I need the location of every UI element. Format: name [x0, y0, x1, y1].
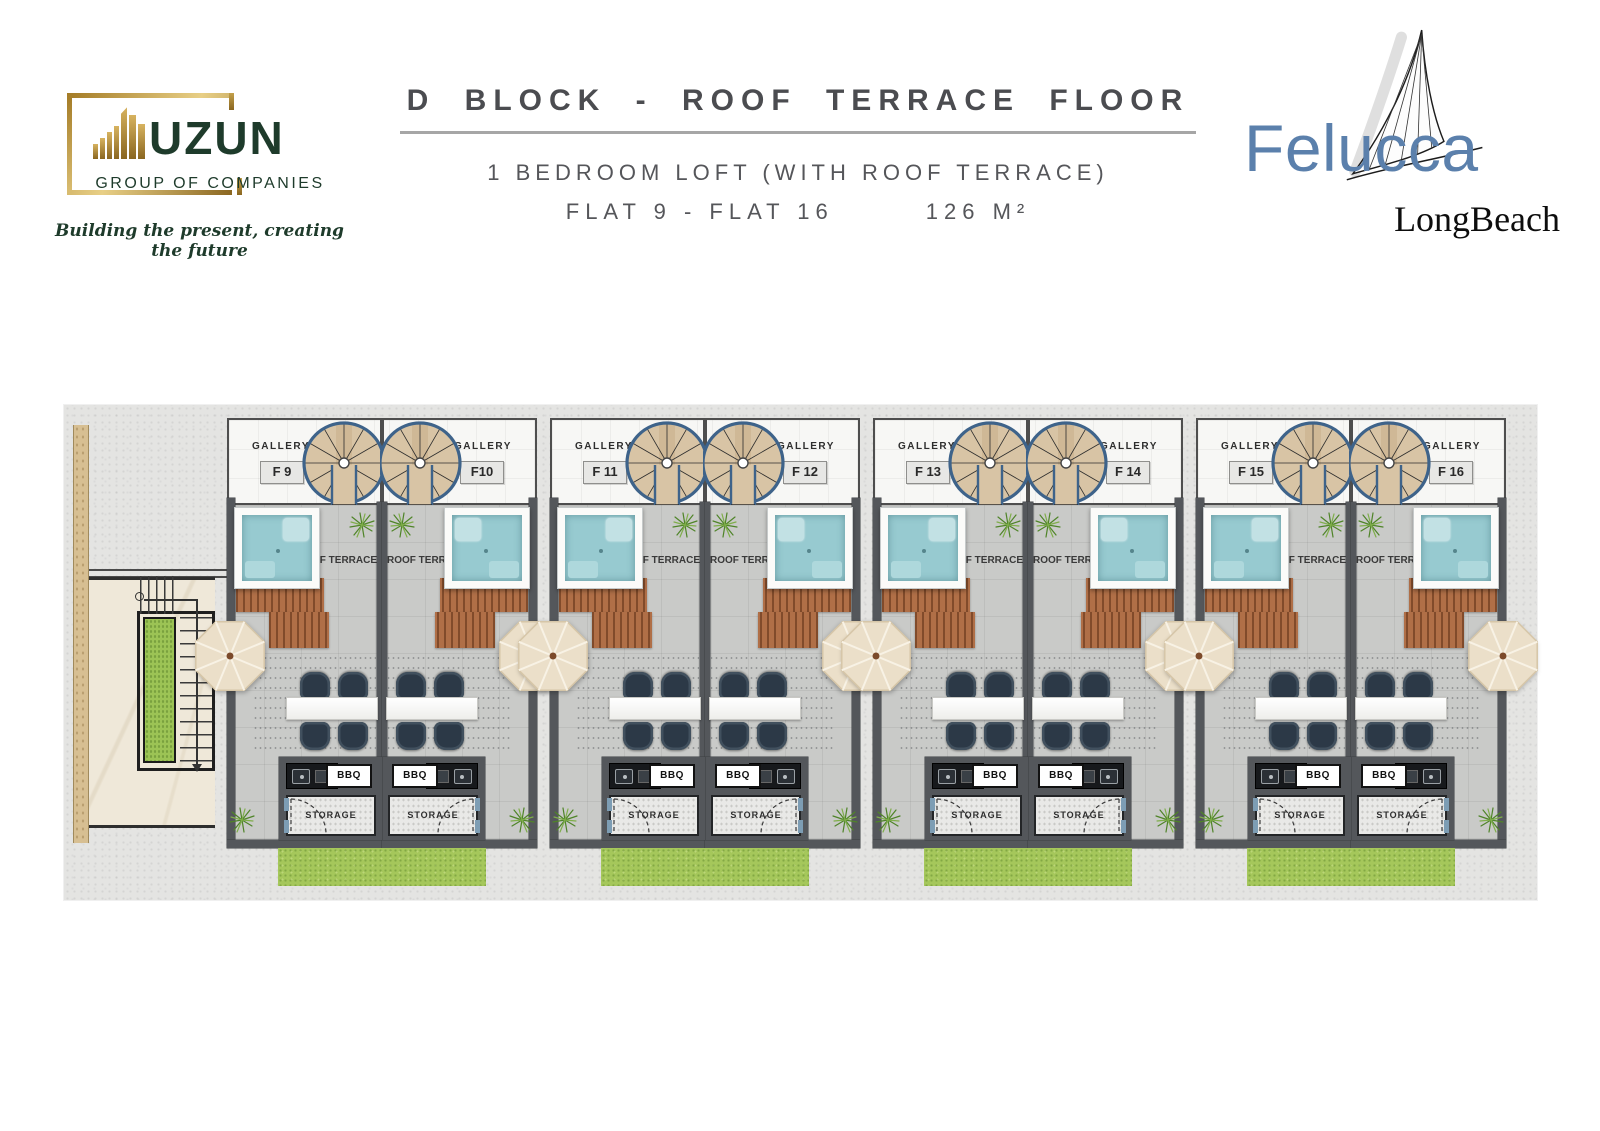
chair: [338, 722, 368, 750]
uzun-frame-stub: [229, 93, 234, 110]
chair: [946, 672, 976, 700]
terrace-wall: [873, 840, 1028, 848]
bbq-storage-block: BBQ STORAGE: [925, 757, 1028, 840]
pergola-deck: [1081, 612, 1141, 648]
pergola-deck: [1404, 612, 1464, 648]
unit-row: GALLERY F 9: [227, 418, 1506, 890]
sink-icon: [1423, 769, 1441, 784]
jacuzzi: [444, 507, 530, 589]
title-block: D BLOCK - ROOF TERRACE FLOOR 1 BEDROOM L…: [400, 84, 1196, 225]
unit-f9: GALLERY F 9: [227, 418, 382, 848]
storage-room: STORAGE: [1357, 795, 1447, 836]
storage-label: STORAGE: [611, 810, 697, 820]
sink-icon: [1100, 769, 1118, 784]
bbq-storage-block: BBQ STORAGE: [1351, 757, 1454, 840]
bbq-storage-block: BBQ STORAGE: [1248, 757, 1351, 840]
felucca-logo: Felucca LongBeach: [1240, 22, 1570, 250]
uzun-logo-name: UZUN: [149, 111, 285, 165]
chair: [1403, 722, 1433, 750]
unit-id-badge: F 11: [583, 461, 627, 484]
jacuzzi: [1413, 507, 1499, 589]
bbq-storage-block: BBQ STORAGE: [602, 757, 705, 840]
unit-area: 126 M²: [926, 199, 1030, 225]
chair: [661, 722, 691, 750]
chair: [396, 722, 426, 750]
chair: [300, 672, 330, 700]
sink-icon: [615, 769, 633, 784]
gallery-strip: GALLERY F 14: [1028, 418, 1183, 505]
chair: [1307, 722, 1337, 750]
grass-strip: [278, 848, 486, 886]
storage-label: STORAGE: [1359, 810, 1445, 820]
plant-icon: [874, 806, 902, 834]
gallery-strip: GALLERY F10: [382, 418, 537, 505]
terrace-wall: [1351, 840, 1506, 848]
dining-table: [286, 697, 378, 720]
dining-table: [709, 697, 801, 720]
jacuzzi: [1090, 507, 1176, 589]
chair: [1080, 722, 1110, 750]
umbrella-icon: [514, 617, 592, 695]
flats-area-line: FLAT 9 - FLAT 16 126 M²: [400, 199, 1196, 225]
unit-f15: GALLERY F 15: [1196, 418, 1351, 848]
unit-id-badge: F 15: [1229, 461, 1273, 484]
spiral-staircase-icon: [1349, 419, 1433, 507]
wall-line: [89, 569, 227, 571]
storage-label: STORAGE: [288, 810, 374, 820]
chair: [434, 672, 464, 700]
jacuzzi-water: [775, 515, 845, 581]
plant-icon: [711, 511, 739, 539]
plant-icon: [1357, 511, 1385, 539]
bbq-storage-block: BBQ STORAGE: [705, 757, 808, 840]
chair: [1403, 672, 1433, 700]
title-underline: [400, 131, 1196, 134]
unit-id-badge: F 12: [783, 461, 827, 484]
bbq-storage-block: BBQ STORAGE: [1028, 757, 1131, 840]
storage-room: STORAGE: [1034, 795, 1124, 836]
plant-icon: [1317, 511, 1345, 539]
plant-icon: [1034, 511, 1062, 539]
jacuzzi: [767, 507, 853, 589]
terrace-wall: [382, 840, 537, 848]
jacuzzi: [234, 507, 320, 589]
chair: [661, 672, 691, 700]
chair: [1269, 722, 1299, 750]
plant-icon: [1154, 806, 1182, 834]
plant-icon: [551, 806, 579, 834]
unit-id-badge: F 9: [260, 461, 304, 484]
plant-icon: [508, 806, 536, 834]
chair: [1307, 672, 1337, 700]
stair-start-symbol: [135, 592, 144, 601]
unit-f11: GALLERY F 11: [550, 418, 705, 848]
unit-f13: GALLERY F 13: [873, 418, 1028, 848]
pergola-deck: [915, 612, 975, 648]
chair: [1269, 672, 1299, 700]
storage-room: STORAGE: [286, 795, 376, 836]
terrace-wall: [705, 840, 860, 848]
terrace-wall: [1196, 840, 1351, 848]
pergola-deck: [1238, 612, 1298, 648]
door-jamb: [1121, 798, 1126, 811]
storage-room: STORAGE: [932, 795, 1022, 836]
bbq-label: BBQ: [1038, 764, 1084, 788]
chair: [946, 722, 976, 750]
storage-room: STORAGE: [1255, 795, 1345, 836]
storage-label: STORAGE: [1257, 810, 1343, 820]
bbq-label: BBQ: [649, 764, 695, 788]
chair: [1365, 722, 1395, 750]
plant-icon: [348, 511, 376, 539]
jacuzzi: [557, 507, 643, 589]
dining-table: [1032, 697, 1124, 720]
plant-icon: [228, 806, 256, 834]
sink-icon: [777, 769, 795, 784]
uzun-logo-subtitle: GROUP OF COMPANIES: [83, 175, 337, 193]
sink-icon: [938, 769, 956, 784]
door-jamb: [475, 820, 480, 833]
roof-terrace-floor: ROOF TERRACE: [550, 505, 705, 840]
sink-icon: [292, 769, 310, 784]
storage-label: STORAGE: [390, 810, 476, 820]
chair: [1042, 672, 1072, 700]
umbrella-icon: [1464, 617, 1542, 695]
door-jamb: [798, 798, 803, 811]
chair: [623, 722, 653, 750]
plant-icon: [994, 511, 1022, 539]
floor-plan: GALLERY F 9: [64, 405, 1537, 900]
jacuzzi-water: [1421, 515, 1491, 581]
pergola-deck: [435, 612, 495, 648]
jacuzzi-water: [565, 515, 635, 581]
door-jamb: [1253, 798, 1258, 811]
flats-range: FLAT 9 - FLAT 16: [566, 199, 834, 225]
bbq-storage-block: BBQ STORAGE: [382, 757, 485, 840]
page-subtitle: 1 BEDROOM LOFT (WITH ROOF TERRACE): [400, 160, 1196, 186]
gallery-strip: GALLERY F 13: [873, 418, 1028, 505]
spiral-staircase-icon: [1269, 419, 1353, 507]
door-jamb: [1444, 820, 1449, 833]
door-jamb: [930, 798, 935, 811]
pergola-deck: [758, 612, 818, 648]
terrace-wall: [550, 840, 705, 848]
chair: [300, 722, 330, 750]
roof-terrace-floor: ROOF TERRACE: [1196, 505, 1351, 840]
spiral-staircase-icon: [300, 419, 384, 507]
chair: [1042, 722, 1072, 750]
gallery-strip: GALLERY F 9: [227, 418, 382, 505]
dining-table: [609, 697, 701, 720]
spiral-staircase-icon: [946, 419, 1030, 507]
door-jamb: [607, 798, 612, 811]
jacuzzi-water: [888, 515, 958, 581]
jacuzzi-water: [452, 515, 522, 581]
building-icon: [93, 107, 145, 159]
bbq-label: BBQ: [392, 764, 438, 788]
unit-id-badge: F 13: [906, 461, 950, 484]
bbq-label: BBQ: [326, 764, 372, 788]
roof-terrace-floor: ROOF TERRACE: [227, 505, 382, 840]
door-jamb: [1121, 820, 1126, 833]
exterior-wall: [73, 425, 89, 843]
plant-icon: [1197, 806, 1225, 834]
door-jamb: [1444, 798, 1449, 811]
dining-table: [1355, 697, 1447, 720]
roof-terrace-floor: ROOF TERRACE: [873, 505, 1028, 840]
unit-pair: GALLERY F 11: [550, 418, 860, 890]
storage-label: STORAGE: [934, 810, 1020, 820]
umbrella-icon: [191, 617, 269, 695]
bbq-storage-block: BBQ STORAGE: [279, 757, 382, 840]
jacuzzi-water: [1098, 515, 1168, 581]
grass-strip: [1247, 848, 1455, 886]
bbq-label: BBQ: [1361, 764, 1407, 788]
chair: [984, 722, 1014, 750]
plant-icon: [1477, 806, 1505, 834]
jacuzzi-water: [1211, 515, 1281, 581]
spiral-staircase-icon: [623, 419, 707, 507]
gallery-strip: GALLERY F 16: [1351, 418, 1506, 505]
spiral-staircase-icon: [703, 419, 787, 507]
door-jamb: [284, 820, 289, 833]
chair: [719, 672, 749, 700]
chair: [434, 722, 464, 750]
chair: [396, 672, 426, 700]
stair-direction-arrow: [192, 764, 202, 772]
bbq-label: BBQ: [1295, 764, 1341, 788]
chair: [1080, 672, 1110, 700]
gallery-strip: GALLERY F 15: [1196, 418, 1351, 505]
storage-room: STORAGE: [609, 795, 699, 836]
door-jamb: [607, 820, 612, 833]
sink-icon: [1261, 769, 1279, 784]
stair-landing: [89, 577, 215, 828]
plant-icon: [388, 511, 416, 539]
grass-strip: [601, 848, 809, 886]
chair: [757, 672, 787, 700]
spiral-staircase-icon: [1026, 419, 1110, 507]
door-jamb: [284, 798, 289, 811]
dining-table: [1255, 697, 1347, 720]
roof-terrace-floor: ROOF TERRACE: [1351, 505, 1506, 840]
pergola-deck: [269, 612, 329, 648]
bbq-label: BBQ: [972, 764, 1018, 788]
storage-room: STORAGE: [388, 795, 478, 836]
stair-path-line: [144, 599, 197, 601]
page: UZUN GROUP OF COMPANIES Building the pre…: [0, 0, 1600, 1131]
unit-pair: GALLERY F 15: [1196, 418, 1506, 890]
bbq-label: BBQ: [715, 764, 761, 788]
chair: [719, 722, 749, 750]
jacuzzi: [1203, 507, 1289, 589]
door-jamb: [930, 820, 935, 833]
door-jamb: [798, 820, 803, 833]
planter: [143, 617, 176, 763]
unit-id-badge: F10: [460, 461, 504, 484]
door-jamb: [1253, 820, 1258, 833]
chair: [757, 722, 787, 750]
grass-strip: [924, 848, 1132, 886]
umbrella-icon: [1160, 617, 1238, 695]
gallery-strip: GALLERY F 12: [705, 418, 860, 505]
felucca-logo-subtitle: LongBeach: [1350, 198, 1560, 240]
unit-pair: GALLERY F 9: [227, 418, 537, 890]
storage-label: STORAGE: [713, 810, 799, 820]
terrace-wall: [227, 840, 382, 848]
chair: [984, 672, 1014, 700]
spiral-staircase-icon: [380, 419, 464, 507]
jacuzzi-water: [242, 515, 312, 581]
plant-icon: [831, 806, 859, 834]
jacuzzi: [880, 507, 966, 589]
unit-f16: GALLERY F 16: [1351, 418, 1506, 848]
chair: [338, 672, 368, 700]
chair: [1365, 672, 1395, 700]
upper-stair-treads: [140, 576, 177, 614]
storage-room: STORAGE: [711, 795, 801, 836]
dining-table: [386, 697, 478, 720]
page-title: D BLOCK - ROOF TERRACE FLOOR: [400, 84, 1196, 118]
uzun-logo: UZUN GROUP OF COMPANIES Building the pre…: [47, 75, 352, 250]
terrace-wall: [1028, 840, 1183, 848]
pergola-deck: [592, 612, 652, 648]
unit-id-badge: F 14: [1106, 461, 1150, 484]
unit-id-badge: F 16: [1429, 461, 1473, 484]
sink-icon: [454, 769, 472, 784]
unit-pair: GALLERY F 13: [873, 418, 1183, 890]
plant-icon: [671, 511, 699, 539]
gallery-strip: GALLERY F 11: [550, 418, 705, 505]
dining-table: [932, 697, 1024, 720]
umbrella-icon: [837, 617, 915, 695]
uzun-logo-tagline: Building the present, creating the futur…: [47, 221, 352, 261]
door-jamb: [475, 798, 480, 811]
storage-label: STORAGE: [1036, 810, 1122, 820]
felucca-logo-name: Felucca: [1244, 110, 1479, 186]
chair: [623, 672, 653, 700]
